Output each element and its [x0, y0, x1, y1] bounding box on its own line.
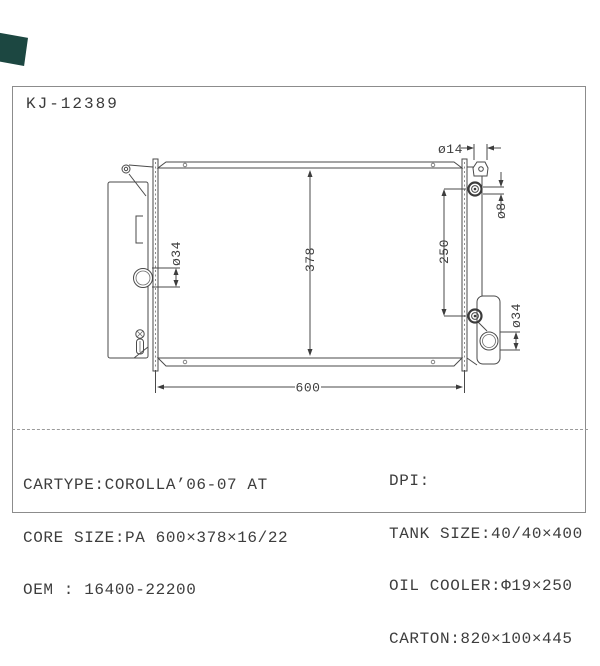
dim-outlet-pipe-label: ø34 — [509, 303, 524, 328]
core-left-end-plate — [153, 159, 158, 371]
spec-tank-size: TANK SIZE:40/40×400 — [389, 526, 583, 544]
dim-core-height-label: 378 — [303, 247, 318, 272]
spec-table-left-column: CARTYPE:COROLLA’06-07 AT CORE SIZE:PA 60… — [23, 442, 288, 617]
dim-outlet-pipe: ø34 — [500, 303, 524, 350]
spec-table-separator — [12, 429, 588, 430]
spec-table-right-column: DPI: TANK SIZE:40/40×400 OIL COOLER:Φ19×… — [389, 438, 583, 666]
dim-core-width-label: 600 — [296, 381, 321, 396]
spec-carton: CARTON:820×100×445 — [389, 631, 583, 649]
core-top-plate — [158, 162, 462, 168]
core-bottom-plate — [158, 358, 462, 366]
dim-mount-bolt: ø8 — [483, 172, 509, 219]
spec-core-size: CORE SIZE:PA 600×378×16/22 — [23, 530, 288, 548]
outlet-pipe — [480, 332, 498, 350]
spec-dpi: DPI: — [389, 473, 583, 491]
dim-inlet-pipe-label: ø34 — [169, 241, 184, 266]
dim-core-height: 378 — [303, 170, 318, 356]
spec-cartype: CARTYPE:COROLLA’06-07 AT — [23, 477, 288, 495]
dim-inlet-pipe: ø34 — [152, 241, 184, 287]
spec-oem: OEM : 16400-22200 — [23, 582, 288, 600]
dim-filler-neck-label: ø14 — [438, 142, 463, 157]
inlet-pipe — [134, 269, 153, 288]
dim-core-width: 600 — [156, 370, 465, 396]
core-right-end-plate — [462, 159, 467, 371]
filler-neck — [473, 162, 488, 176]
dim-bracket-pitch-label: 250 — [437, 239, 452, 264]
spec-oil-cooler: OIL COOLER:Φ19×250 — [389, 578, 583, 596]
dim-filler-neck: ø14 — [438, 142, 501, 160]
dim-mount-bolt-label: ø8 — [494, 202, 509, 219]
upper-mount-bolt — [469, 183, 482, 196]
